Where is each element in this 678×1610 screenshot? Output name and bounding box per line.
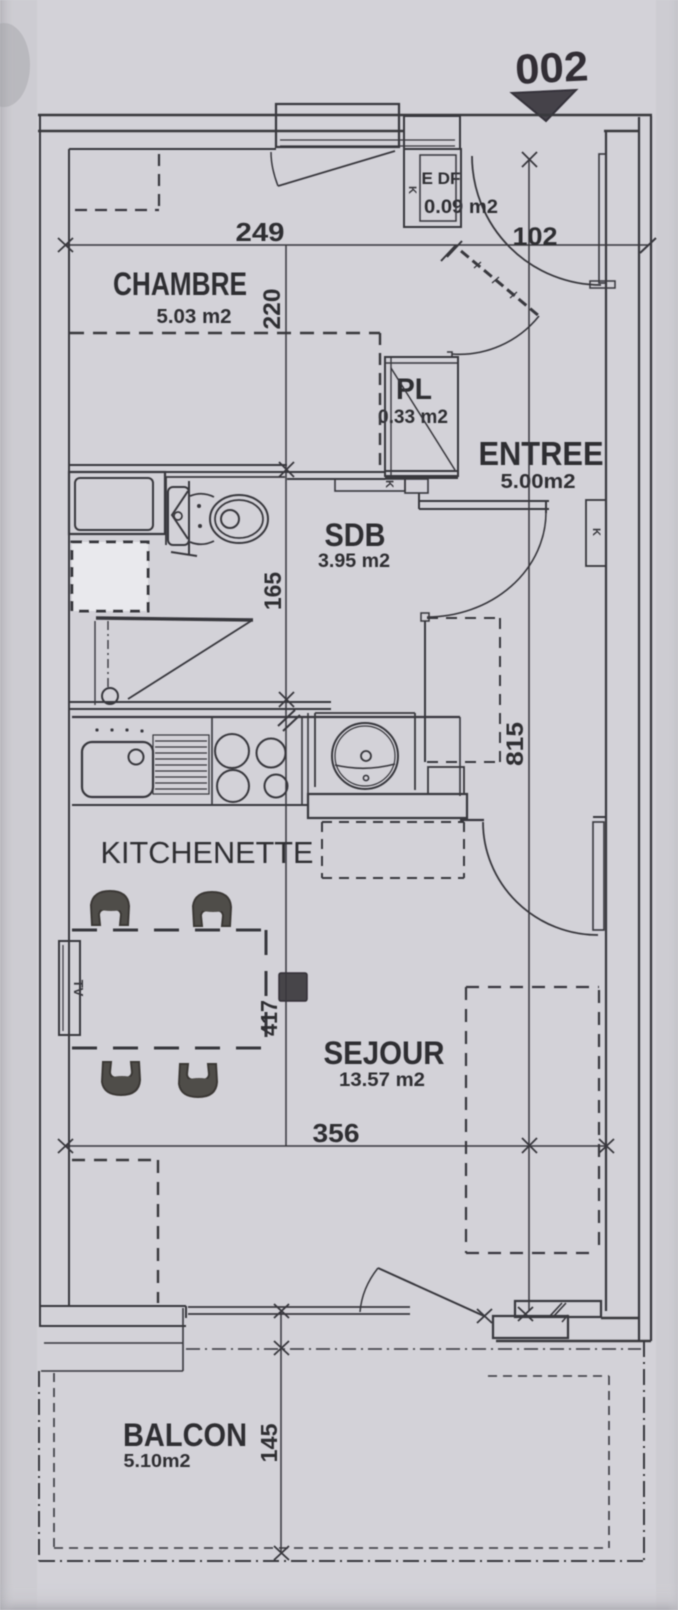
svg-text:417: 417 [256, 1000, 282, 1036]
svg-text:5.00m2: 5.00m2 [501, 471, 576, 493]
svg-text:249: 249 [236, 217, 285, 247]
svg-text:K: K [590, 528, 602, 536]
svg-text:TV: TV [71, 980, 86, 997]
svg-text:CHAMBRE: CHAMBRE [113, 266, 247, 302]
svg-text:0.33 m2: 0.33 m2 [378, 407, 448, 428]
svg-text:K: K [383, 480, 395, 488]
svg-text:815: 815 [502, 722, 529, 766]
svg-text:102: 102 [513, 223, 558, 251]
svg-text:5.10m2: 5.10m2 [124, 1451, 191, 1471]
svg-text:002: 002 [514, 42, 589, 93]
svg-text:356: 356 [313, 1118, 360, 1148]
svg-text:PL: PL [396, 373, 432, 406]
svg-text:220: 220 [259, 289, 286, 330]
svg-text:145: 145 [256, 1423, 282, 1462]
svg-text:SEJOUR: SEJOUR [324, 1035, 445, 1071]
svg-text:5.03 m2: 5.03 m2 [157, 306, 232, 328]
svg-text:3.95 m2: 3.95 m2 [318, 551, 390, 572]
svg-text:KITCHENETTE: KITCHENETTE [101, 835, 314, 870]
svg-text:13.57 m2: 13.57 m2 [339, 1070, 425, 1091]
svg-text:E DF: E DF [422, 169, 461, 188]
svg-text:SDB: SDB [325, 517, 386, 553]
svg-text:ENTREE: ENTREE [479, 435, 604, 472]
svg-text:165: 165 [260, 572, 287, 610]
svg-text:BALCON: BALCON [123, 1417, 247, 1453]
svg-text:K: K [406, 186, 418, 194]
